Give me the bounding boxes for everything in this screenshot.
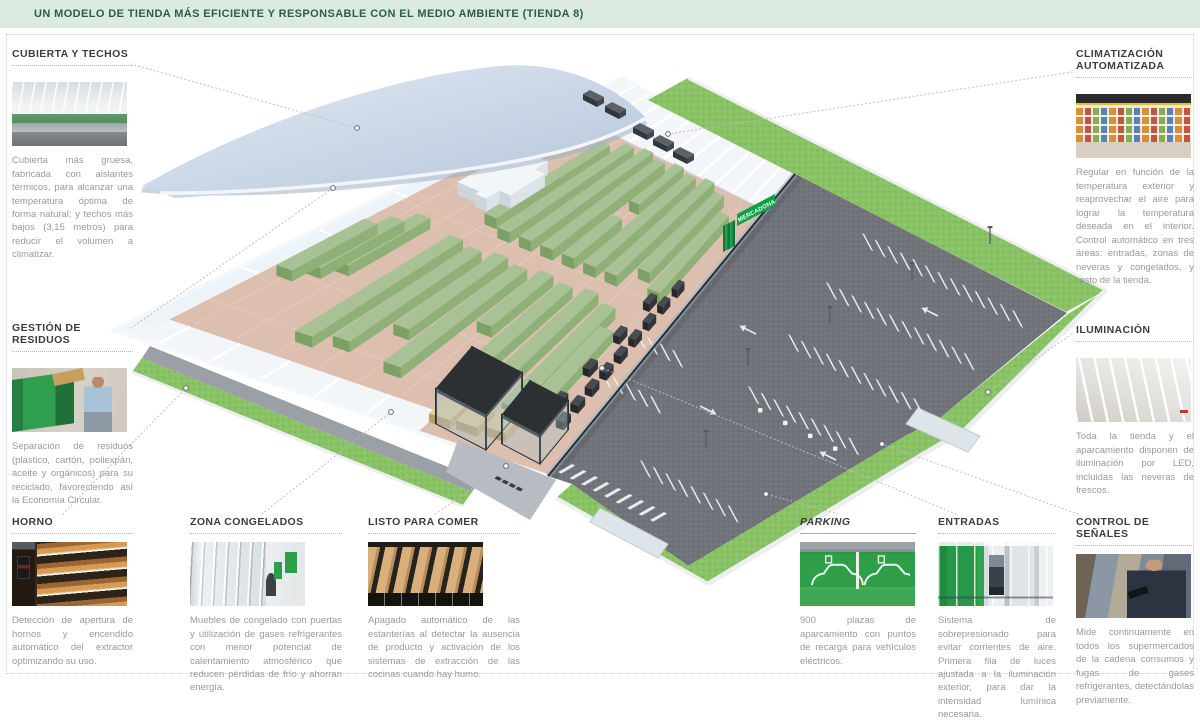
callout-body: Sistema de sobrepresionado para evitar c… xyxy=(938,614,1056,722)
oven-photo xyxy=(12,542,127,606)
callout-body: Cubierta más gruesa, fabricada con aisla… xyxy=(12,154,133,262)
refrigerated-aisle-photo xyxy=(1076,94,1191,158)
divider xyxy=(1076,545,1194,546)
callout-parking: PARKING 900 plazas de aparcamiento con p… xyxy=(800,516,916,668)
callout-title: ENTRADAS xyxy=(938,516,1056,528)
ev-charging-photo xyxy=(800,542,915,606)
callout-horno: HORNO Detección de apertura de hornos y … xyxy=(12,516,133,668)
callout-gestion-residuos: GESTIÓN DE RESIDUOS Separación de residu… xyxy=(12,322,133,508)
divider xyxy=(368,533,520,534)
divider xyxy=(1076,77,1194,78)
food-boxes-photo xyxy=(368,542,483,606)
divider xyxy=(190,533,342,534)
callout-body: Apagado automático de las estanterías al… xyxy=(368,614,520,681)
callout-iluminacion: ILUMINACIÓN Toda la tienda y el aparcami… xyxy=(1076,324,1194,497)
page-title: UN MODELO DE TIENDA MÁS EFICIENTE Y RESP… xyxy=(34,8,584,20)
callout-title: LISTO PARA COMER xyxy=(368,516,520,528)
callout-title: CLIMATIZACIÓN AUTOMATIZADA xyxy=(1076,48,1194,72)
led-ceiling-photo xyxy=(1076,358,1191,422)
header-bar: UN MODELO DE TIENDA MÁS EFICIENTE Y RESP… xyxy=(0,0,1200,28)
callout-body: Mide continuamente en todos los supermer… xyxy=(1076,626,1194,707)
cardboard-piece xyxy=(52,368,85,386)
callout-title: CUBIERTA Y TECHOS xyxy=(12,48,133,60)
callout-title: GESTIÓN DE RESIDUOS xyxy=(12,322,133,346)
divider xyxy=(800,533,916,534)
callout-climatizacion: CLIMATIZACIÓN AUTOMATIZADA Regular en fu… xyxy=(1076,48,1194,287)
recycling-photo xyxy=(12,368,127,432)
divider xyxy=(1076,341,1194,342)
callout-body: Muebles de congelado con puertas y utili… xyxy=(190,614,342,695)
callout-body: Regular en función de la temperatura ext… xyxy=(1076,166,1194,287)
callout-body: Separación de residuos (plástico, cartón… xyxy=(12,440,133,507)
callout-body: Detección de apertura de hornos y encend… xyxy=(12,614,133,668)
store-ceiling-photo xyxy=(12,82,127,146)
callout-body: 900 plazas de aparcamiento con puntos de… xyxy=(800,614,916,668)
car-outline-icon xyxy=(805,555,911,592)
callout-title: PARKING xyxy=(800,516,916,528)
technician-photo xyxy=(1076,554,1191,618)
callout-title: CONTROL DE SEÑALES xyxy=(1076,516,1194,540)
callout-zona-congelados: ZONA CONGELADOS Muebles de congelado con… xyxy=(190,516,342,695)
store-entrance-photo xyxy=(938,542,1053,606)
callout-title: HORNO xyxy=(12,516,133,528)
divider xyxy=(12,351,133,352)
divider xyxy=(12,533,133,534)
freezer-doors-photo xyxy=(190,542,305,606)
callout-body: Toda la tienda y el aparcamiento dispone… xyxy=(1076,430,1194,497)
callout-control-senales: CONTROL DE SEÑALES Mide continuamente en… xyxy=(1076,516,1194,707)
callout-title: ILUMINACIÓN xyxy=(1076,324,1194,336)
shopper-figure xyxy=(266,573,276,596)
callout-entradas: ENTRADAS Sistema de sobrepresionado para… xyxy=(938,516,1056,722)
divider xyxy=(12,65,133,66)
callout-title: ZONA CONGELADOS xyxy=(190,516,342,528)
callout-cubierta-techos: CUBIERTA Y TECHOS Cubierta más gruesa, f… xyxy=(12,48,133,262)
callout-listo-para-comer: LISTO PARA COMER Apagado automático de l… xyxy=(368,516,520,681)
divider xyxy=(938,533,1056,534)
infographic-page: { "header": { "title": "UN MODELO DE TIE… xyxy=(0,0,1200,679)
oven-display xyxy=(17,556,31,578)
